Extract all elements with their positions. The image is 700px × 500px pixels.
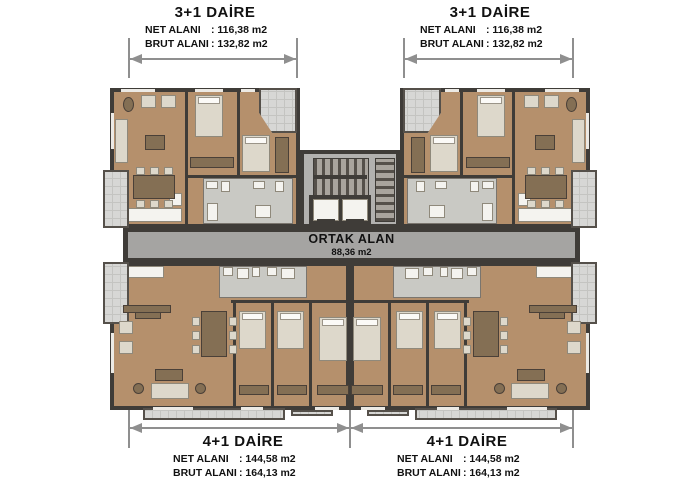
coffee-table	[155, 369, 183, 381]
elevator-cabin	[342, 199, 368, 221]
dimension-tick	[296, 38, 298, 78]
chair	[463, 317, 471, 326]
apartment-label-bottom-right: 4+1 DAİRE NET ALANI: 144,58 m2 BRUT ALAN…	[372, 433, 562, 480]
pouf	[133, 383, 144, 394]
staircase	[375, 158, 395, 222]
armchair	[544, 95, 559, 108]
common-area-size: 88,36 m2	[128, 247, 575, 258]
sink	[253, 181, 265, 189]
sink	[467, 267, 477, 276]
chair	[500, 345, 508, 354]
window	[437, 407, 459, 410]
net-area-label: NET ALANI	[173, 452, 239, 466]
pillow	[399, 313, 420, 320]
apartment-label-bottom-left: 4+1 DAİRE NET ALANI: 144,58 m2 BRUT ALAN…	[148, 433, 338, 480]
dining-table	[473, 311, 499, 357]
wardrobe	[466, 157, 510, 168]
wardrobe	[351, 385, 383, 395]
chair	[541, 167, 550, 175]
sink	[435, 181, 447, 189]
armchair	[119, 321, 133, 334]
toilet	[416, 181, 425, 192]
chair	[136, 167, 145, 175]
shower	[451, 268, 463, 279]
partition-wall	[309, 303, 312, 406]
coffee-table	[517, 369, 545, 381]
shower	[207, 203, 218, 221]
dimension-line-top-right	[405, 54, 572, 64]
gross-area-value: : 164,13 m2	[463, 466, 537, 480]
chair	[463, 345, 471, 354]
window	[195, 89, 223, 92]
side-table	[123, 97, 134, 112]
window	[111, 113, 114, 149]
elevator-cabin	[313, 199, 339, 221]
sofa	[115, 119, 128, 163]
net-area-label: NET ALANI	[145, 23, 211, 37]
net-area-value: : 144,58 m2	[239, 452, 313, 466]
apartment-title: 3+1 DAİRE	[395, 4, 585, 21]
chair	[150, 200, 159, 208]
bathtub	[429, 205, 445, 218]
wardrobe	[317, 385, 349, 395]
coffee-table	[535, 135, 555, 150]
sofa	[511, 383, 549, 399]
window	[153, 407, 193, 410]
building-plan: ORTAK ALAN 88,36 m2	[103, 85, 600, 420]
toilet	[275, 181, 284, 192]
chair	[192, 317, 200, 326]
toilet	[221, 181, 230, 192]
bathtub	[255, 205, 271, 218]
window	[507, 407, 547, 410]
bathtub	[281, 268, 295, 279]
net-area-value: : 116,38 m2	[486, 23, 560, 37]
window	[586, 333, 589, 373]
chair	[164, 167, 173, 175]
window	[241, 407, 263, 410]
tv-unit	[123, 305, 171, 313]
pillow	[480, 97, 502, 104]
sink	[223, 267, 233, 276]
partition-wall	[231, 300, 347, 303]
gross-area-value: : 164,13 m2	[239, 466, 313, 480]
wardrobe	[393, 385, 423, 395]
window	[445, 89, 459, 92]
window-sill	[367, 410, 409, 416]
chair	[463, 331, 471, 340]
toilet	[440, 267, 448, 277]
apartment-title: 3+1 DAİRE	[120, 4, 310, 21]
toilet	[252, 267, 260, 277]
pillow	[433, 137, 455, 144]
chair	[229, 345, 237, 354]
gross-area-label: BRUT ALANI	[420, 37, 486, 51]
balcony	[103, 170, 129, 228]
pillow	[242, 313, 263, 320]
window-sill	[291, 410, 333, 416]
side-table	[566, 97, 577, 112]
armchair	[524, 95, 539, 108]
elevator-door	[317, 219, 335, 222]
sofa	[151, 383, 189, 399]
elevator-door	[346, 219, 364, 222]
pillow	[437, 313, 458, 320]
window	[121, 89, 155, 92]
pouf	[556, 383, 567, 394]
dining-table	[525, 175, 567, 199]
sink	[206, 181, 218, 189]
tv-unit	[529, 305, 577, 313]
net-area-label: NET ALANI	[420, 23, 486, 37]
armchair	[567, 321, 581, 334]
shower	[482, 203, 493, 221]
corridor-end-wall	[575, 228, 580, 262]
window	[241, 89, 255, 92]
armchair	[567, 341, 581, 354]
shower	[237, 268, 249, 279]
wardrobe	[275, 137, 289, 173]
partition-wall	[353, 300, 469, 303]
dining-table	[201, 311, 227, 357]
net-area-value: : 116,38 m2	[211, 23, 285, 37]
partition-wall	[512, 92, 515, 224]
pouf	[195, 383, 206, 394]
chair	[555, 200, 564, 208]
dimension-line-bottom-left	[130, 423, 349, 433]
window	[361, 407, 385, 410]
chair	[192, 331, 200, 340]
common-area-label: ORTAK ALAN 88,36 m2	[128, 232, 575, 258]
wardrobe	[190, 157, 234, 168]
pillow	[322, 319, 344, 326]
dimension-tick	[572, 38, 574, 78]
sink	[423, 267, 433, 276]
armchair	[161, 95, 176, 108]
window	[315, 407, 339, 410]
gross-area-value: : 132,82 m2	[211, 37, 285, 51]
window	[586, 113, 589, 149]
chair	[541, 200, 550, 208]
armchair	[141, 95, 156, 108]
coffee-table	[145, 135, 165, 150]
partition-wall	[388, 303, 391, 406]
partition-wall	[185, 92, 188, 224]
sink	[267, 267, 277, 276]
wardrobe	[239, 385, 269, 395]
gross-area-label: BRUT ALANI	[397, 466, 463, 480]
dining-table	[133, 175, 175, 199]
chair	[500, 331, 508, 340]
common-area-title: ORTAK ALAN	[128, 232, 575, 246]
gross-area-label: BRUT ALANI	[145, 37, 211, 51]
pillow	[356, 319, 378, 326]
window	[111, 333, 114, 373]
partition-wall	[271, 303, 274, 406]
armchair	[119, 341, 133, 354]
gross-area-label: BRUT ALANI	[173, 466, 239, 480]
bathtub	[405, 268, 419, 279]
wardrobe	[277, 385, 307, 395]
apartment-label-top-right: 3+1 DAİRE NET ALANI: 116,38 m2 BRUT ALAN…	[395, 4, 585, 51]
dimension-line-bottom-right	[351, 423, 572, 433]
floor-plan-sheet: 3+1 DAİRE NET ALANI: 116,38 m2 BRUT ALAN…	[0, 0, 700, 500]
stair-landing	[313, 175, 367, 179]
pillow	[280, 313, 301, 320]
chair	[136, 200, 145, 208]
chair	[527, 167, 536, 175]
partition-wall	[426, 303, 429, 406]
net-area-label: NET ALANI	[397, 452, 463, 466]
chair	[555, 167, 564, 175]
apartment-title: 4+1 DAİRE	[372, 433, 562, 450]
window	[477, 89, 505, 92]
net-area-value: : 144,58 m2	[463, 452, 537, 466]
dimension-line-top-left	[130, 54, 296, 64]
balcony	[571, 262, 597, 324]
pouf	[494, 383, 505, 394]
partition-wall	[237, 92, 240, 175]
partition-wall	[460, 92, 463, 175]
balcony	[103, 262, 129, 324]
window	[545, 89, 579, 92]
pillow	[245, 137, 267, 144]
apartment-label-top-left: 3+1 DAİRE NET ALANI: 116,38 m2 BRUT ALAN…	[120, 4, 310, 51]
chair	[229, 331, 237, 340]
chair	[192, 345, 200, 354]
chair	[229, 317, 237, 326]
balcony	[571, 170, 597, 228]
sink	[482, 181, 494, 189]
apartment-title: 4+1 DAİRE	[148, 433, 338, 450]
chair	[164, 200, 173, 208]
sofa	[572, 119, 585, 163]
wardrobe	[411, 137, 425, 173]
chair	[500, 317, 508, 326]
wardrobe	[431, 385, 461, 395]
pillow	[198, 97, 220, 104]
toilet	[470, 181, 479, 192]
gross-area-value: : 132,82 m2	[486, 37, 560, 51]
chair	[527, 200, 536, 208]
chair	[150, 167, 159, 175]
